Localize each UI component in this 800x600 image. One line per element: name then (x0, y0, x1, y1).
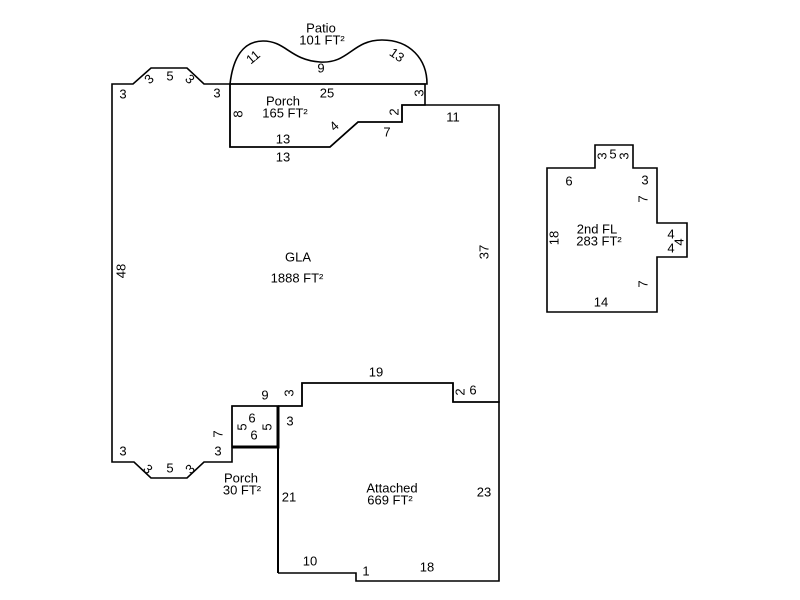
gla-dim-zig-bottom: 5 (166, 461, 173, 476)
garage-dim-top: 3 (286, 414, 293, 429)
gla-dim-bottom-b: 3 (119, 444, 126, 459)
upper-porch-dim-diag: 4 (326, 118, 341, 134)
second-floor-dim-right-lower: 7 (636, 280, 651, 287)
second-floor-dim-bump-left: 3 (595, 152, 610, 159)
garage-area: 669 FT² (367, 493, 413, 508)
second-floor-dim-top-left: 6 (565, 174, 572, 189)
lower-porch-dim-right: 5 (260, 423, 275, 430)
patio-dim-curve-mid: 9 (317, 61, 324, 76)
second-floor-dim-right-upper: 7 (636, 195, 651, 202)
lower-porch-area: 30 FT² (223, 483, 262, 498)
upper-porch-dim-bottom-inner: 13 (276, 132, 290, 147)
gla-dim-right: 37 (477, 245, 492, 259)
gla-area: 1888 FT² (271, 271, 324, 286)
garage-dim-right: 23 (477, 485, 491, 500)
floorplan-svg: Patio 101 FT² 11 9 13 Porch 165 FT² 25 3… (0, 0, 800, 600)
gla-dim-top-right: 11 (446, 110, 460, 125)
gla-dim-bottom-a: 3 (214, 444, 221, 459)
second-floor-dim-left: 18 (547, 231, 562, 245)
garage-dim-bottom-left: 10 (303, 554, 317, 569)
patio-area: 101 FT² (299, 33, 345, 48)
upper-porch-dim-step-v: 2 (387, 108, 402, 115)
upper-porch-dim-left: 8 (231, 110, 246, 117)
gla-dim-bump-down: 3 (182, 71, 198, 87)
patio-dim-curve-left: 11 (243, 47, 263, 67)
lower-porch-dim-left: 5 (235, 423, 250, 430)
gla-label: GLA (285, 250, 311, 265)
gla-dim-bump-top: 5 (166, 69, 173, 84)
gla-dim-bottom-19: 19 (369, 365, 383, 380)
gla-dim-left: 48 (114, 264, 129, 278)
upper-porch-area: 165 FT² (262, 106, 308, 121)
second-floor-dim-bottom: 14 (594, 295, 608, 310)
gla-dim-notch-left: 7 (211, 430, 226, 437)
patio-dim-curve-right: 13 (387, 45, 407, 66)
upper-porch-dim-top: 25 (320, 86, 334, 101)
floorplan-sketch: Patio 101 FT² 11 9 13 Porch 165 FT² 25 3… (0, 0, 800, 600)
second-floor-dim-bump-right: 3 (617, 152, 632, 159)
garage-dim-bottom-right: 18 (420, 560, 434, 575)
second-floor-area: 283 FT² (576, 234, 622, 249)
gla-dim-bump-up: 3 (141, 71, 157, 87)
second-floor-dim-ext-bottom: 4 (667, 241, 674, 256)
garage-dim-step: 1 (362, 564, 369, 579)
gla-dim-bottom-step: 3 (282, 389, 297, 396)
lower-porch-dim-bottom: 6 (250, 428, 257, 443)
gla-dim-bottom-9: 9 (261, 388, 268, 403)
second-floor-dim-top-right: 3 (641, 173, 648, 188)
upper-porch-dim-bottom-outer: 13 (276, 150, 290, 165)
gla-dim-top-b: 3 (213, 86, 220, 101)
gla-dim-top-a: 3 (119, 87, 126, 102)
gla-dim-bottom-2: 2 (453, 388, 468, 395)
garage-dim-left: 21 (282, 490, 296, 505)
upper-porch-dim-right: 3 (412, 89, 427, 96)
lower-porch-dim-top: 6 (248, 411, 255, 426)
gla-dim-bottom-6: 6 (469, 383, 476, 398)
upper-porch-dim-step-h: 7 (383, 125, 390, 140)
